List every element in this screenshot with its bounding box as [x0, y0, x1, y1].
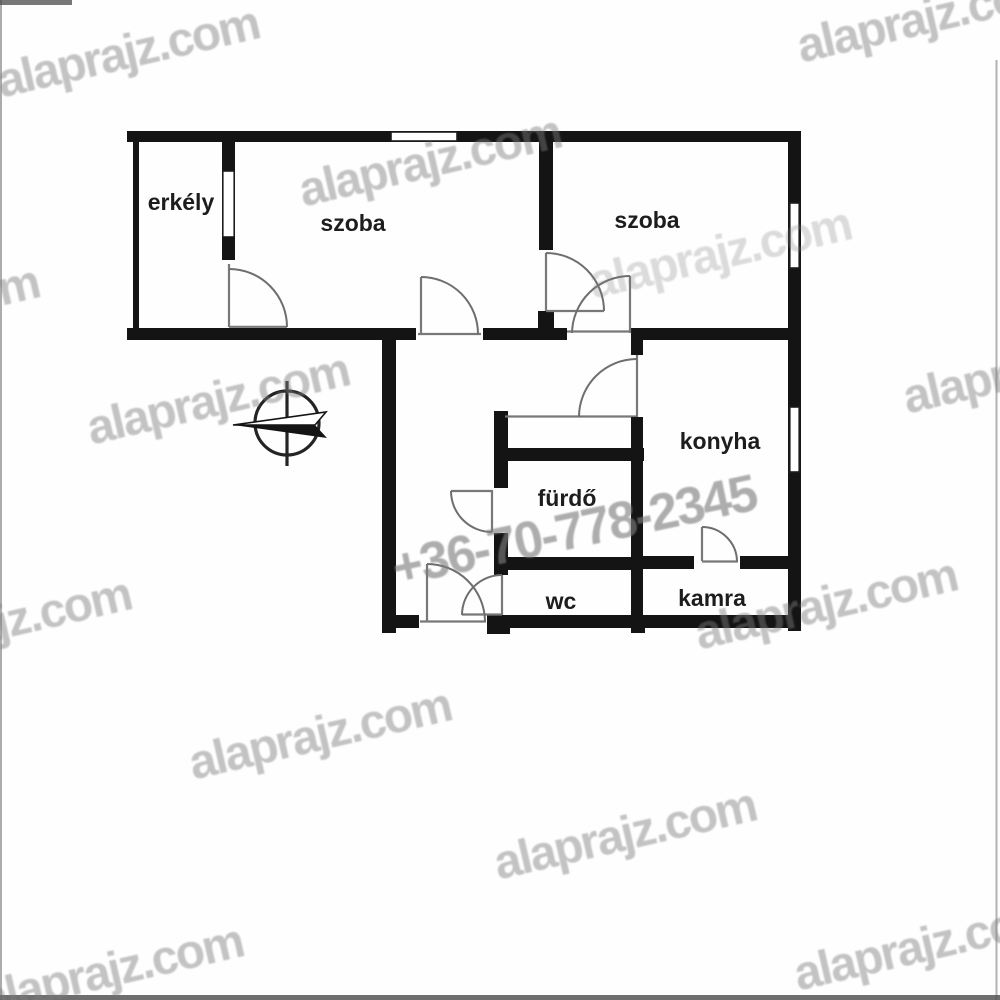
svg-text:erkély: erkély: [148, 189, 215, 215]
svg-text:alaprajz.com: alaprajz.com: [690, 549, 962, 661]
svg-text:alaprajz.com: alaprajz.com: [792, 0, 1000, 73]
svg-text:wc: wc: [545, 588, 577, 614]
svg-text:alaprajz.com: alaprajz.com: [898, 313, 1000, 425]
svg-text:alaprajz.com: alaprajz.com: [0, 915, 248, 1000]
svg-text:alaprajz.com: alaprajz.com: [789, 890, 1000, 1000]
svg-text:alaprajz.com: alaprajz.com: [0, 256, 44, 368]
svg-text:+36-70-778-2345: +36-70-778-2345: [387, 464, 762, 598]
svg-text:szoba: szoba: [614, 207, 679, 233]
svg-text:alaprajz.com: alaprajz.com: [0, 0, 264, 108]
svg-text:alaprajz.com: alaprajz.com: [82, 344, 354, 456]
svg-text:alaprajz.com: alaprajz.com: [294, 106, 566, 218]
svg-text:alaprajz.com: alaprajz.com: [184, 679, 456, 791]
svg-text:alaprajz.com: alaprajz.com: [489, 779, 761, 891]
svg-text:alaprajz.com: alaprajz.com: [0, 568, 136, 680]
svg-text:konyha: konyha: [680, 428, 761, 454]
svg-text:szoba: szoba: [320, 210, 385, 236]
